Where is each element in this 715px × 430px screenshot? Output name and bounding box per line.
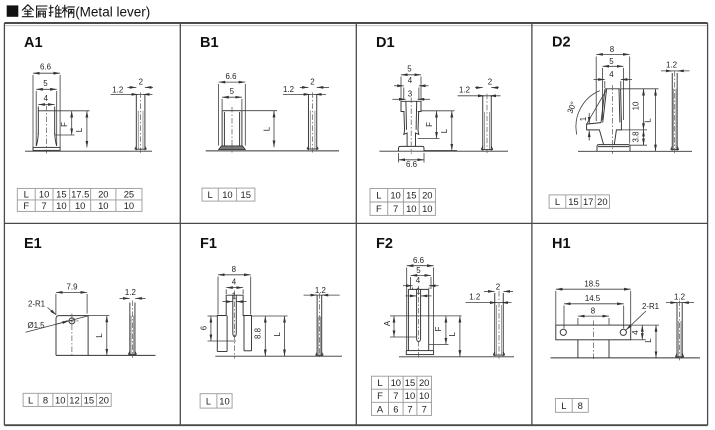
svg-text:25: 25 [124,189,134,200]
svg-text:18.5: 18.5 [584,279,600,288]
svg-text:L: L [555,196,560,207]
svg-text:A1: A1 [24,35,43,51]
svg-text:8: 8 [43,394,48,405]
svg-text:2: 2 [496,282,500,291]
svg-text:L: L [561,400,566,411]
svg-text:5: 5 [609,57,614,66]
svg-text:10: 10 [55,394,65,405]
svg-text:L: L [24,189,29,200]
svg-text:A: A [383,320,392,326]
svg-text:F: F [23,200,29,211]
svg-text:2-R1: 2-R1 [28,300,45,309]
svg-text:5: 5 [416,266,421,275]
svg-text:F: F [425,122,434,127]
svg-text:6.6: 6.6 [40,63,52,72]
svg-text:1.2: 1.2 [469,292,480,301]
svg-text:F: F [376,203,382,214]
svg-text:1.2: 1.2 [674,292,685,301]
svg-text:L: L [95,333,104,338]
svg-text:8: 8 [578,400,583,411]
svg-text:10: 10 [390,190,400,201]
svg-text:10: 10 [391,377,401,388]
svg-text:10: 10 [98,200,108,211]
svg-text:10: 10 [75,200,85,211]
svg-text:L: L [75,127,84,132]
svg-text:L: L [208,189,213,200]
svg-text:10: 10 [56,200,66,211]
svg-text:4: 4 [631,330,640,335]
svg-text:L: L [263,126,272,131]
svg-text:10: 10 [405,390,415,401]
svg-text:2: 2 [139,77,143,86]
svg-text:7: 7 [393,203,398,214]
svg-text:7.9: 7.9 [67,282,79,291]
svg-text:1.2: 1.2 [283,85,294,94]
svg-text:L: L [376,190,381,201]
svg-text:E1: E1 [24,236,42,252]
svg-text:15: 15 [568,196,578,207]
svg-text:3.8: 3.8 [632,131,641,143]
svg-text:6.6: 6.6 [413,256,425,265]
svg-text:A: A [377,403,384,414]
svg-text:1.2: 1.2 [666,60,677,69]
svg-text:20: 20 [422,190,432,201]
svg-text:L: L [28,394,33,405]
svg-text:6.6: 6.6 [406,160,418,169]
svg-text:15: 15 [241,189,251,200]
svg-text:6.6: 6.6 [226,72,238,81]
svg-text:15: 15 [405,377,415,388]
svg-text:L: L [644,338,653,343]
svg-text:D1: D1 [376,35,395,51]
svg-text:20: 20 [99,394,109,405]
svg-text:10: 10 [39,189,49,200]
svg-text:L: L [206,395,211,406]
svg-text:4: 4 [609,70,614,79]
svg-text:L: L [440,128,449,133]
svg-text:D2: D2 [552,35,571,51]
svg-text:F2: F2 [376,236,393,252]
svg-text:4: 4 [44,94,49,103]
svg-text:4: 4 [232,277,237,286]
svg-text:F1: F1 [200,236,217,252]
svg-text:1.2: 1.2 [459,86,470,95]
svg-text:15: 15 [84,394,94,405]
svg-text:L: L [273,331,282,336]
svg-text:10: 10 [124,200,134,211]
svg-text:10: 10 [219,395,229,406]
svg-text:F: F [377,390,383,401]
svg-text:8: 8 [610,45,615,54]
svg-text:L: L [644,118,653,123]
svg-text:7: 7 [393,390,398,401]
svg-text:8.8: 8.8 [254,327,263,339]
svg-text:10: 10 [222,189,232,200]
svg-text:10: 10 [422,203,432,214]
svg-text:6: 6 [393,403,398,414]
svg-text:2: 2 [488,78,492,87]
svg-text:7: 7 [422,403,427,414]
svg-text:12: 12 [69,394,79,405]
svg-text:2: 2 [310,77,314,86]
svg-text:20: 20 [419,377,429,388]
svg-text:4: 4 [408,76,413,85]
svg-text:15: 15 [56,189,66,200]
svg-text:B1: B1 [200,35,219,51]
svg-text:Ø1.5: Ø1.5 [27,321,45,330]
svg-text:F: F [60,122,69,127]
svg-text:5: 5 [43,79,48,88]
svg-text:1.2: 1.2 [315,286,326,295]
svg-text:H1: H1 [552,236,571,252]
svg-text:7: 7 [407,403,412,414]
svg-text:1.2: 1.2 [112,86,123,95]
svg-text:7: 7 [41,200,46,211]
svg-text:10: 10 [406,203,416,214]
svg-text:8: 8 [591,307,596,316]
svg-text:14.5: 14.5 [585,294,601,303]
svg-text:4: 4 [416,276,421,285]
svg-text:F: F [434,326,443,331]
svg-text:17.5: 17.5 [71,189,89,200]
svg-text:5: 5 [407,65,412,74]
svg-text:20: 20 [98,189,108,200]
svg-text:1.2: 1.2 [125,288,136,297]
svg-text:L: L [448,331,457,336]
svg-text:15: 15 [406,190,416,201]
svg-text:1: 1 [579,117,588,121]
svg-text:20: 20 [597,196,607,207]
svg-text:2-R1: 2-R1 [642,302,659,311]
svg-text:L: L [377,377,382,388]
svg-text:(Metal lever): (Metal lever) [75,4,150,19]
svg-text:17: 17 [583,196,593,207]
svg-text:8: 8 [232,265,237,274]
svg-text:10: 10 [419,390,429,401]
svg-text:6: 6 [200,325,209,330]
svg-text:5: 5 [230,87,235,96]
svg-text:3: 3 [408,90,413,99]
svg-text:10: 10 [632,101,641,110]
